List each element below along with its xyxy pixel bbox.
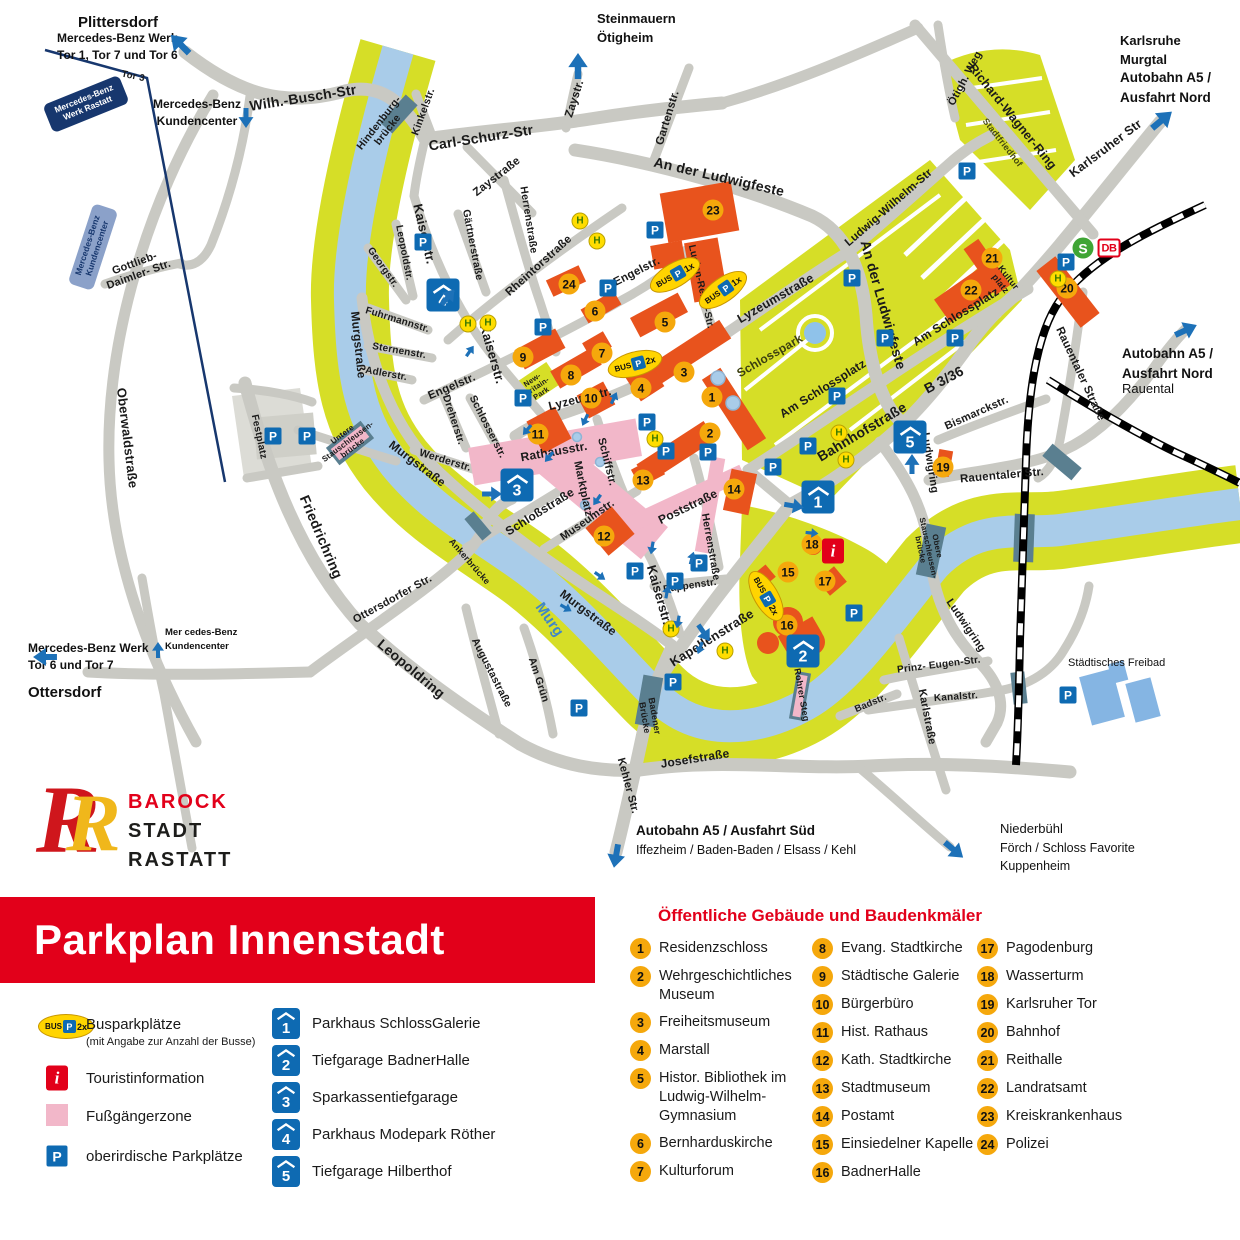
building-legend-item: 12Kath. Stadtkirche: [812, 1050, 982, 1071]
destination-label: Iffezheim / Baden-Baden / Elsass / Kehl: [636, 841, 856, 859]
street-label: Adlerstr.: [364, 366, 408, 384]
surface-parking-icon: P: [515, 390, 532, 407]
poi-marker: 10: [581, 388, 602, 409]
buildings-legend-heading: Öffentliche Gebäude und Baudenkmäler: [658, 906, 982, 926]
building-legend-label: Bahnhof: [1006, 1022, 1060, 1043]
building-legend-item: 23Kreiskrankenhaus: [977, 1106, 1157, 1127]
street-label: Lyzeumstraße: [735, 272, 816, 327]
tourist-info-label: Touristinformation: [86, 1070, 204, 1087]
parking-garage-icon: 2: [787, 635, 820, 668]
building-legend-item: 20Bahnhof: [977, 1022, 1157, 1043]
street-label: Carl-Schurz-Str: [428, 122, 535, 153]
garage-legend-icon: 2: [272, 1045, 300, 1076]
street-label: Georgstr.: [364, 246, 399, 290]
sbahn-icon: S: [1073, 238, 1094, 259]
building-number-badge: 1: [630, 938, 651, 959]
garage-legend-item: 3Sparkassentiefgarage: [272, 1082, 458, 1113]
buildings-legend-col3: 17Pagodenburg18Wasserturm19Karlsruher To…: [977, 938, 1157, 1162]
street-label: Oberwaldstraße: [114, 387, 140, 489]
building-legend-label: Landratsamt: [1006, 1078, 1087, 1099]
street-label: Karlsruher Str: [1067, 117, 1144, 180]
bus-stop-icon: H: [480, 315, 497, 332]
building-legend-item: 8Evang. Stadtkirche: [812, 938, 982, 959]
building-legend-item: 13Stadtmuseum: [812, 1078, 982, 1099]
building-number-badge: 7: [630, 1161, 651, 1182]
building-legend-item: 18Wasserturm: [977, 966, 1157, 987]
building-number-badge: 4: [630, 1040, 651, 1061]
logo-wordmark: BAROCK STADT RASTATT: [128, 788, 232, 875]
street-label: Prinz- Eugen-Str.: [897, 656, 982, 677]
direction-arrow-icon: [482, 486, 502, 503]
garage-legend-icon: 3: [272, 1082, 300, 1113]
building-legend-label: Kath. Stadtkirche: [841, 1050, 951, 1071]
direction-arrow-icon: [577, 412, 592, 428]
bus-stop-icon: H: [1050, 271, 1067, 288]
poi-marker: 3: [674, 362, 695, 383]
bus-parking-label: Busparkplätze: [86, 1016, 181, 1033]
direction-arrow-icon: [33, 647, 57, 667]
building-number-badge: 24: [977, 1134, 998, 1155]
surface-parking-legend-icon: P: [47, 1146, 68, 1167]
poi-marker: 7: [592, 343, 613, 364]
garage-legend-label: Parkhaus Modepark Röther: [312, 1126, 495, 1143]
surface-parking-icon: P: [647, 222, 664, 239]
street-label: Kinkelstr.: [410, 87, 438, 137]
building-legend-label: Stadtmuseum: [841, 1078, 930, 1099]
building-legend-label: Einsiedelner Kapelle: [841, 1134, 973, 1155]
building-legend-label: Reithalle: [1006, 1050, 1062, 1071]
poi-marker: 13: [633, 470, 654, 491]
direction-arrow-icon: [646, 541, 659, 556]
logo-r-yellow-icon: R: [66, 776, 121, 870]
street-label: Zaystraße: [471, 155, 523, 199]
tourist-info-legend-icon: i: [46, 1066, 68, 1091]
street-label: Bismarckstr.: [943, 395, 1010, 434]
poi-marker: 17: [815, 571, 836, 592]
garage-legend-item: 4Parkhaus Modepark Röther: [272, 1119, 495, 1150]
building-legend-label: Wasserturm: [1006, 966, 1084, 987]
surface-parking-icon: P: [829, 388, 846, 405]
street-label: Am Schlossplatz: [778, 357, 869, 420]
poi-marker: 4: [631, 378, 652, 399]
building-number-badge: 14: [812, 1106, 833, 1127]
surface-parking-icon: P: [844, 270, 861, 287]
garage-legend-label: Tiefgarage BadnerHalle: [312, 1052, 470, 1069]
street-label: Wilh.-Busch-Str: [249, 82, 358, 114]
street-label: Augustastraße: [469, 637, 514, 710]
surface-parking-label: oberirdische Parkplätze: [86, 1148, 243, 1165]
street-label: Schlosspark: [735, 332, 805, 380]
surface-parking-icon: P: [959, 163, 976, 180]
parking-garage-icon: 5: [894, 421, 927, 454]
street-label: Hindenburg- brücke: [355, 95, 413, 160]
building-legend-label: Marstall: [659, 1040, 710, 1061]
building-legend-label: Bernharduskirche: [659, 1133, 773, 1154]
street-label: Josefstraße: [660, 747, 731, 771]
garage-legend-item: 2Tiefgarage BadnerHalle: [272, 1045, 470, 1076]
destination-label: Mercedes-Benz Kundencenter: [153, 96, 241, 131]
street-label: Herrenstraße: [517, 186, 539, 255]
poi-marker: 5: [655, 312, 676, 333]
building-legend-label: Residenzschloss: [659, 938, 768, 959]
pedestrian-zone-swatch: [46, 1104, 68, 1126]
street-label: Rauentaler Str.: [960, 466, 1045, 486]
building-number-badge: 6: [630, 1133, 651, 1154]
surface-parking-icon: P: [535, 319, 552, 336]
building-legend-item: 24Polizei: [977, 1134, 1157, 1155]
direction-arrow-icon: [661, 585, 674, 600]
building-number-badge: 5: [630, 1068, 651, 1089]
direction-arrow-icon: [783, 496, 806, 516]
building-number-badge: 12: [812, 1050, 833, 1071]
building-legend-item: 6Bernharduskirche: [630, 1133, 815, 1154]
direction-arrow-icon: [238, 108, 255, 128]
bus-stop-icon: H: [647, 431, 664, 448]
street-label: Tor 3: [120, 70, 145, 85]
building-legend-item: 22Landratsamt: [977, 1078, 1157, 1099]
building-legend-label: Freiheitsmuseum: [659, 1012, 770, 1033]
direction-arrow-icon: [462, 343, 478, 360]
building-number-badge: 22: [977, 1078, 998, 1099]
building-legend-item: 11Hist. Rathaus: [812, 1022, 982, 1043]
street-label: An der Ludwigfeste: [652, 155, 785, 200]
building-legend-item: 17Pagodenburg: [977, 938, 1157, 959]
surface-parking-icon: P: [265, 428, 282, 445]
building-number-badge: 16: [812, 1162, 833, 1183]
poi-marker: 2: [700, 423, 721, 444]
street-label: Schiffstr.: [594, 437, 617, 487]
street-label: Kehler Str.: [614, 757, 640, 815]
poi-marker: 23: [703, 200, 724, 221]
street-label: Sternenstr.: [371, 342, 427, 362]
surface-parking-icon: P: [765, 459, 782, 476]
direction-arrow-icon: [567, 53, 589, 79]
poi-marker: 12: [594, 526, 615, 547]
title-bar: Parkplan Innenstadt: [0, 897, 595, 983]
poi-marker: 6: [585, 301, 606, 322]
surface-parking-icon: P: [1060, 687, 1077, 704]
destination-label: Niederbühl: [1000, 820, 1063, 839]
surface-parking-icon: P: [299, 428, 316, 445]
poi-marker: 14: [724, 479, 745, 500]
surface-parking-icon: P: [947, 330, 964, 347]
building-number-badge: 3: [630, 1012, 651, 1033]
building-legend-label: Hist. Rathaus: [841, 1022, 928, 1043]
bus-stop-icon: H: [460, 316, 477, 333]
surface-parking-icon: P: [627, 563, 644, 580]
pedestrian-zone-label: Fußgängerzone: [86, 1108, 192, 1125]
db-rail-icon: DB: [1098, 239, 1121, 258]
destination-label: Autobahn A5 / Ausfahrt Nord: [1122, 344, 1213, 383]
direction-arrow-icon: [604, 842, 628, 869]
garage-legend-item: 1Parkhaus SchlossGalerie: [272, 1008, 480, 1039]
building-number-badge: 9: [812, 966, 833, 987]
street-label: Gottlieb- Daimler- Str.: [101, 247, 172, 292]
garage-legend-icon: 4: [272, 1119, 300, 1150]
poi-marker: 15: [778, 562, 799, 583]
page-title: Parkplan Innenstadt: [34, 916, 445, 964]
bus-stop-icon: H: [717, 643, 734, 660]
direction-arrow-icon: [151, 642, 164, 658]
building-legend-label: BadnerHalle: [841, 1162, 921, 1183]
surface-parking-icon: P: [800, 438, 817, 455]
buildings-legend-col1: 1Residenzschloss2Wehrgeschichtliches Mus…: [630, 938, 815, 1189]
poi-marker: 19: [933, 457, 954, 478]
surface-parking-icon: P: [700, 444, 717, 461]
garage-legend-label: Sparkassentiefgarage: [312, 1089, 458, 1106]
street-label: B 3/36: [922, 363, 967, 396]
building-legend-label: Postamt: [841, 1106, 894, 1127]
street-label: Fuhrmannstr.: [364, 306, 431, 336]
building-legend-item: 3Freiheitsmuseum: [630, 1012, 815, 1033]
street-label: Badstr.: [854, 693, 889, 716]
buildings-legend-col2: 8Evang. Stadtkirche9Städtische Galerie10…: [812, 938, 982, 1190]
street-label: Gartenstr.: [654, 89, 682, 146]
building-legend-item: 1Residenzschloss: [630, 938, 815, 959]
street-label: Zaystr.: [563, 79, 587, 119]
garage-legend-label: Parkhaus SchlossGalerie: [312, 1015, 480, 1032]
building-legend-item: 9Städtische Galerie: [812, 966, 982, 987]
building-legend-label: Histor. Bibliothek im Ludwig-Wilhelm-Gym…: [659, 1068, 815, 1126]
street-label: Untere Stauschleusen- brücke: [315, 413, 380, 471]
building-legend-label: Karlsruher Tor: [1006, 994, 1097, 1015]
direction-arrow-icon: [1171, 316, 1201, 344]
parking-garage-icon: 1: [802, 481, 835, 514]
destination-label: Autobahn A5 / Ausfahrt Nord: [1120, 68, 1211, 107]
street-label: Friedrichring: [297, 493, 346, 581]
building-legend-item: 16BadnerHalle: [812, 1162, 982, 1183]
direction-arrow-icon: [904, 454, 921, 474]
street-label: Marktplatz: [570, 460, 593, 518]
poi-marker: 24: [559, 274, 580, 295]
building-number-badge: 20: [977, 1022, 998, 1043]
street-label: Leopoldring: [374, 637, 447, 702]
street-label: Rohrer Steg: [792, 668, 811, 723]
building-number-badge: 21: [977, 1050, 998, 1071]
building-legend-label: Bürgerbüro: [841, 994, 914, 1015]
tourist-info-icon: i: [822, 539, 844, 564]
street-label: Gärtnerstraße: [460, 209, 485, 282]
street-label: Schlosserstr.: [466, 394, 507, 460]
poi-marker: 22: [961, 280, 982, 301]
building-legend-label: Pagodenburg: [1006, 938, 1093, 959]
parkplan-poster: Wilh.-Busch-StrHindenburg- brückeCarl-Sc…: [0, 0, 1240, 1240]
parking-garage-icon: 3: [501, 469, 534, 502]
building-number-badge: 18: [977, 966, 998, 987]
street-label: Kanalstr.: [934, 691, 979, 705]
destination-label: Karlsruhe Murgtal: [1120, 32, 1181, 70]
building-legend-label: Kreiskrankenhaus: [1006, 1106, 1122, 1127]
building-number-badge: 15: [812, 1134, 833, 1155]
poi-marker: 9: [513, 347, 534, 368]
destination-label: Ottersdorf: [28, 682, 101, 704]
surface-parking-icon: P: [846, 605, 863, 622]
poi-marker: 21: [982, 248, 1003, 269]
street-label: Obere Stauschleusen- brücke: [909, 515, 947, 581]
building-legend-item: 19Karlsruher Tor: [977, 994, 1157, 1015]
destination-label: Steinmauern Ötigheim: [597, 10, 676, 48]
building-legend-item: 15Einsiedelner Kapelle: [812, 1134, 982, 1155]
street-label: Ankerbrücke: [447, 537, 492, 587]
surface-parking-icon: P: [415, 234, 432, 251]
building-legend-item: 2Wehrgeschichtliches Museum: [630, 966, 815, 1005]
destination-label: Mer cedes-Benz Kundencenter: [165, 626, 237, 654]
building-legend-label: Wehrgeschichtliches Museum: [659, 966, 815, 1005]
destination-label: Autobahn A5 / Ausfahrt Süd: [636, 821, 815, 841]
street-label: Dreherstr.: [440, 394, 467, 447]
bus-stop-icon: H: [572, 213, 589, 230]
street-label: Ludwigring: [943, 597, 987, 654]
surface-parking-icon: P: [665, 674, 682, 691]
street-label: Badener Brücke: [636, 697, 662, 737]
street-label: Ottersdorfer Str.: [351, 573, 434, 626]
surface-parking-icon: P: [600, 280, 617, 297]
mercedes-area-box: Mercedes-Benz Werk Rastatt: [42, 75, 129, 134]
garage-legend-item: 5Tiefgarage Hilberthof: [272, 1156, 452, 1187]
surface-parking-icon: P: [1058, 254, 1075, 271]
direction-arrow-icon: [805, 527, 819, 539]
building-number-badge: 8: [812, 938, 833, 959]
garage-legend-label: Tiefgarage Hilberthof: [312, 1163, 452, 1180]
surface-parking-icon: P: [571, 700, 588, 717]
bus-parking-sublabel: (mit Angabe zur Anzahl der Busse): [86, 1036, 255, 1048]
building-number-badge: 13: [812, 1078, 833, 1099]
building-legend-item: 14Postamt: [812, 1106, 982, 1127]
destination-label: Förch / Schloss Favorite Kuppenheim: [1000, 839, 1135, 875]
surface-parking-icon: P: [877, 330, 894, 347]
direction-arrow-icon: [938, 835, 969, 866]
street-label: Kaiserstr.: [477, 323, 507, 386]
bus-parking-icon: BUSP2x: [605, 345, 666, 384]
building-number-badge: 17: [977, 938, 998, 959]
building-legend-item: 4Marstall: [630, 1040, 815, 1061]
building-legend-item: 5Histor. Bibliothek im Ludwig-Wilhelm-Gy…: [630, 1068, 815, 1126]
street-label: Ludwig-Wilhelm-Str: [843, 167, 935, 249]
bus-stop-icon: H: [589, 233, 606, 250]
garage-legend-icon: 1: [272, 1008, 300, 1039]
building-number-badge: 10: [812, 994, 833, 1015]
building-legend-item: 7Kulturforum: [630, 1161, 815, 1182]
street-label: Rauentaler Straße: [1053, 325, 1107, 423]
garage-legend-icon: 5: [272, 1156, 300, 1187]
building-legend-label: Städtische Galerie: [841, 966, 959, 987]
bus-stop-icon: H: [838, 452, 855, 469]
destination-label: Rauental: [1122, 380, 1174, 399]
direction-arrow-icon: [1145, 103, 1179, 136]
building-legend-label: Polizei: [1006, 1134, 1049, 1155]
surface-parking-icon: P: [639, 414, 656, 431]
direction-arrow-icon: [592, 568, 609, 584]
building-number-badge: 23: [977, 1106, 998, 1127]
poi-marker: 1: [702, 387, 723, 408]
building-number-badge: 2: [630, 966, 651, 987]
street-label: An der Ludwigfeste: [857, 239, 908, 371]
barock-stadt-rastatt-logo: R R BAROCK STADT RASTATT: [36, 778, 326, 888]
building-number-badge: 11: [812, 1022, 833, 1043]
direction-arrow-icon: [672, 615, 685, 630]
destination-label: Städtisches Freibad: [1068, 656, 1165, 672]
building-number-badge: 19: [977, 994, 998, 1015]
destination-label: Mercedes-Benz Werk Tor 1, Tor 7 und Tor …: [57, 30, 178, 65]
map-overlay: Wilh.-Busch-StrHindenburg- brückeCarl-Sc…: [0, 0, 1240, 890]
building-legend-label: Kulturforum: [659, 1161, 734, 1182]
poi-marker: 8: [561, 365, 582, 386]
bus-stop-icon: H: [831, 425, 848, 442]
building-legend-label: Evang. Stadtkirche: [841, 938, 963, 959]
street-label: Leopoldstr.: [392, 224, 413, 281]
building-legend-item: 10Bürgerbüro: [812, 994, 982, 1015]
building-legend-item: 21Reithalle: [977, 1050, 1157, 1071]
street-label: Am Grün: [525, 656, 550, 704]
